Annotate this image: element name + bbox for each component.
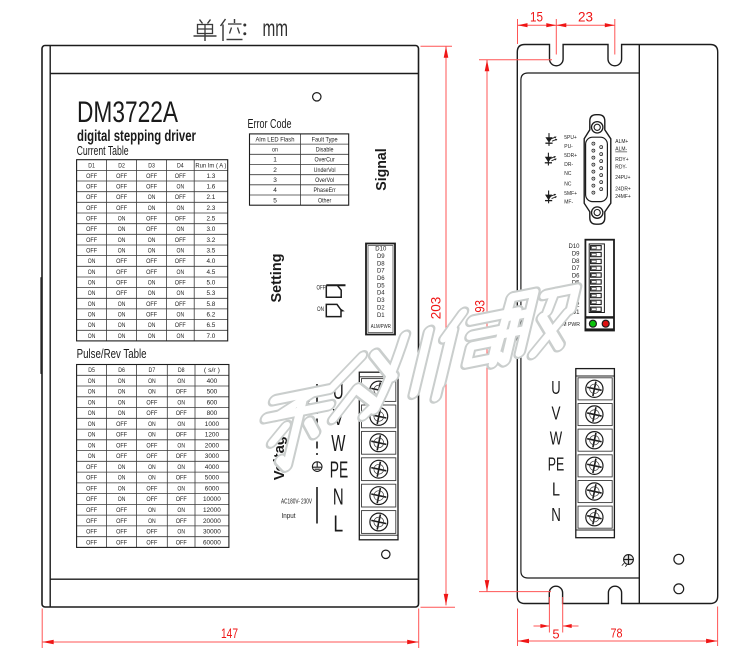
svg-text:OFF: OFF bbox=[146, 529, 157, 536]
svg-text:OFF: OFF bbox=[146, 312, 157, 319]
svg-text:OFF: OFF bbox=[86, 486, 97, 493]
svg-text:L: L bbox=[552, 478, 560, 499]
svg-text:10000: 10000 bbox=[203, 496, 221, 503]
svg-text:D7: D7 bbox=[377, 269, 385, 275]
svg-text:D4: D4 bbox=[377, 291, 385, 297]
svg-text:U: U bbox=[551, 377, 560, 398]
svg-text:2: 2 bbox=[273, 167, 277, 174]
svg-text:Fault Type: Fault Type bbox=[312, 136, 338, 143]
svg-text:ON: ON bbox=[88, 453, 96, 460]
svg-text:ON: ON bbox=[118, 475, 126, 482]
svg-text:PhaseErr: PhaseErr bbox=[314, 187, 337, 194]
svg-text:OFF: OFF bbox=[146, 442, 157, 449]
svg-text:ON: ON bbox=[88, 312, 96, 319]
svg-text:ON: ON bbox=[177, 226, 185, 233]
svg-text:ON: ON bbox=[148, 389, 156, 396]
svg-text:4.5: 4.5 bbox=[206, 269, 215, 276]
svg-text:ON: ON bbox=[88, 258, 96, 265]
svg-text:OFF: OFF bbox=[176, 475, 187, 482]
svg-text:6000: 6000 bbox=[205, 486, 220, 493]
svg-text:OFF: OFF bbox=[317, 285, 326, 292]
svg-text:OFF: OFF bbox=[175, 216, 186, 223]
svg-text:ON: ON bbox=[118, 410, 126, 417]
svg-text:Other: Other bbox=[318, 197, 332, 204]
svg-text:OFF: OFF bbox=[86, 184, 97, 191]
svg-text:5: 5 bbox=[552, 627, 559, 642]
svg-text:15: 15 bbox=[530, 10, 543, 25]
svg-text:RDY+: RDY+ bbox=[615, 157, 629, 163]
svg-text:78: 78 bbox=[611, 626, 623, 641]
svg-text:RDY-: RDY- bbox=[615, 165, 627, 171]
svg-text:1.3: 1.3 bbox=[206, 173, 215, 180]
svg-text:4000: 4000 bbox=[205, 464, 220, 471]
svg-text:Current Table: Current Table bbox=[77, 143, 129, 158]
svg-text:Error Code: Error Code bbox=[248, 116, 292, 131]
svg-text:MF-: MF- bbox=[564, 200, 573, 206]
svg-text:D9: D9 bbox=[572, 252, 580, 258]
svg-text:D8: D8 bbox=[377, 261, 385, 267]
svg-text:3000: 3000 bbox=[205, 453, 220, 460]
svg-text:ON: ON bbox=[317, 306, 324, 313]
svg-text:NC: NC bbox=[564, 171, 571, 177]
svg-text:ON: ON bbox=[148, 194, 156, 201]
svg-text:OFF: OFF bbox=[116, 194, 127, 201]
svg-text:D7: D7 bbox=[572, 266, 580, 272]
svg-text:OFF: OFF bbox=[86, 173, 97, 180]
svg-text:OFF: OFF bbox=[86, 529, 97, 536]
svg-text:D6: D6 bbox=[377, 276, 385, 282]
svg-text:N: N bbox=[551, 504, 561, 525]
svg-text:3.5: 3.5 bbox=[206, 248, 215, 255]
svg-text:D10: D10 bbox=[568, 244, 580, 250]
svg-text:OFF: OFF bbox=[116, 539, 127, 546]
svg-text:ON: ON bbox=[148, 464, 156, 471]
svg-text:1: 1 bbox=[273, 157, 277, 164]
svg-text:ON: ON bbox=[118, 464, 126, 471]
svg-text:6.5: 6.5 bbox=[206, 322, 215, 329]
svg-text:24DR+: 24DR+ bbox=[615, 186, 631, 192]
svg-text:ON: ON bbox=[88, 410, 96, 417]
svg-text:ON: ON bbox=[118, 486, 126, 493]
svg-text:D3: D3 bbox=[377, 298, 385, 304]
svg-text:3: 3 bbox=[273, 177, 277, 184]
svg-text:D5: D5 bbox=[377, 283, 385, 289]
svg-text:OFF: OFF bbox=[146, 539, 157, 546]
svg-text:ON: ON bbox=[88, 399, 96, 406]
svg-text:AC180V- 230V: AC180V- 230V bbox=[281, 497, 312, 506]
svg-text:ON: ON bbox=[177, 312, 185, 319]
svg-text:ON: ON bbox=[148, 475, 156, 482]
svg-text:OFF: OFF bbox=[146, 301, 157, 308]
svg-text:1.6: 1.6 bbox=[206, 184, 215, 191]
svg-text:OverCur: OverCur bbox=[315, 157, 336, 164]
svg-text:OFF: OFF bbox=[116, 269, 127, 276]
svg-text:2.3: 2.3 bbox=[206, 205, 215, 212]
svg-text:ON: ON bbox=[148, 421, 156, 428]
svg-text:2.1: 2.1 bbox=[206, 194, 215, 201]
svg-text:D9: D9 bbox=[377, 254, 385, 260]
svg-text:OFF: OFF bbox=[175, 194, 186, 201]
svg-text:D3: D3 bbox=[148, 162, 155, 169]
svg-text:ON: ON bbox=[148, 280, 156, 287]
svg-text:ON: ON bbox=[88, 378, 96, 385]
svg-text:ON: ON bbox=[88, 389, 96, 396]
svg-text:OFF: OFF bbox=[116, 432, 127, 439]
svg-text:ON: ON bbox=[118, 248, 126, 255]
svg-text:D8: D8 bbox=[572, 259, 580, 265]
svg-text:Input: Input bbox=[282, 511, 297, 520]
svg-text:2.5: 2.5 bbox=[206, 216, 215, 223]
svg-text:ON: ON bbox=[118, 389, 126, 396]
svg-text:OFF: OFF bbox=[176, 539, 187, 546]
svg-text:OFF: OFF bbox=[146, 399, 157, 406]
svg-text:ON: ON bbox=[118, 378, 126, 385]
svg-text:on: on bbox=[272, 147, 278, 154]
svg-text:Disable: Disable bbox=[316, 147, 334, 154]
svg-text:ON: ON bbox=[118, 312, 126, 319]
svg-text:ON: ON bbox=[177, 248, 185, 255]
svg-text:OFF: OFF bbox=[175, 322, 186, 329]
svg-text:ON: ON bbox=[118, 237, 126, 244]
svg-text:ON: ON bbox=[177, 269, 185, 276]
svg-text:800: 800 bbox=[207, 410, 218, 417]
svg-text:ON: ON bbox=[177, 378, 185, 385]
svg-text:OFF: OFF bbox=[146, 226, 157, 233]
svg-text:OFF: OFF bbox=[176, 410, 187, 417]
svg-text:OFF: OFF bbox=[116, 421, 127, 428]
svg-text:4.0: 4.0 bbox=[206, 258, 215, 265]
svg-text:OFF: OFF bbox=[116, 453, 127, 460]
svg-text:ON: ON bbox=[148, 290, 156, 297]
svg-text:DM3722A: DM3722A bbox=[77, 96, 178, 129]
svg-text:D2: D2 bbox=[377, 305, 385, 311]
svg-text:1200: 1200 bbox=[205, 432, 220, 439]
svg-text:ON: ON bbox=[177, 184, 185, 191]
svg-text:147: 147 bbox=[221, 626, 238, 641]
svg-text:OFF: OFF bbox=[86, 475, 97, 482]
svg-text:D7: D7 bbox=[149, 367, 156, 374]
svg-text:ON: ON bbox=[177, 205, 185, 212]
svg-text:ON: ON bbox=[177, 529, 185, 536]
svg-text:ON: ON bbox=[148, 378, 156, 385]
svg-text:Setting: Setting bbox=[268, 254, 285, 303]
svg-text:ON: ON bbox=[177, 464, 185, 471]
svg-text:ON: ON bbox=[118, 216, 126, 223]
svg-text:Run Im ( A ): Run Im ( A ) bbox=[195, 162, 226, 169]
svg-text:OFF: OFF bbox=[175, 173, 186, 180]
svg-text:D6: D6 bbox=[118, 367, 125, 374]
svg-text:ALM/PWR: ALM/PWR bbox=[371, 324, 391, 330]
svg-text:OFF: OFF bbox=[146, 173, 157, 180]
svg-text:ON: ON bbox=[88, 333, 96, 340]
svg-text:OFF: OFF bbox=[116, 184, 127, 191]
svg-text:ON: ON bbox=[177, 442, 185, 449]
svg-text:OFF: OFF bbox=[116, 258, 127, 265]
svg-text:ON: ON bbox=[118, 322, 126, 329]
svg-text:ON: ON bbox=[177, 507, 185, 514]
svg-text:3.2: 3.2 bbox=[206, 237, 215, 244]
svg-text:D1: D1 bbox=[88, 162, 95, 169]
svg-text:W: W bbox=[550, 428, 563, 449]
svg-text:OFF: OFF bbox=[116, 290, 127, 297]
svg-text:400: 400 bbox=[207, 378, 218, 385]
svg-text:OFF: OFF bbox=[176, 389, 187, 396]
svg-text:ON: ON bbox=[177, 290, 185, 297]
svg-text:OFF: OFF bbox=[86, 205, 97, 212]
svg-text:OFF: OFF bbox=[146, 453, 157, 460]
svg-text:5MF+: 5MF+ bbox=[564, 191, 577, 197]
svg-text:ON: ON bbox=[148, 205, 156, 212]
svg-text:PU-: PU- bbox=[564, 144, 573, 150]
svg-text:ON: ON bbox=[148, 518, 156, 525]
svg-text:OFF: OFF bbox=[175, 258, 186, 265]
svg-text:D6: D6 bbox=[572, 273, 580, 279]
svg-text:ON: ON bbox=[88, 280, 96, 287]
svg-text:1000: 1000 bbox=[205, 421, 220, 428]
svg-text:OFF: OFF bbox=[86, 237, 97, 244]
svg-text:OFF: OFF bbox=[116, 173, 127, 180]
svg-text:ON: ON bbox=[88, 442, 96, 449]
svg-text:ALM-: ALM- bbox=[615, 147, 627, 153]
svg-text:OFF: OFF bbox=[86, 226, 97, 233]
svg-text:5.8: 5.8 bbox=[206, 301, 215, 308]
svg-text:12000: 12000 bbox=[203, 507, 221, 514]
svg-text:23: 23 bbox=[578, 10, 593, 25]
svg-text:7.0: 7.0 bbox=[206, 333, 215, 340]
svg-text:mm: mm bbox=[263, 15, 289, 41]
svg-text:ON: ON bbox=[88, 421, 96, 428]
svg-text:W: W bbox=[331, 430, 345, 456]
svg-text:ON: ON bbox=[148, 333, 156, 340]
svg-text:OFF: OFF bbox=[146, 486, 157, 493]
svg-text:ON: ON bbox=[148, 237, 156, 244]
svg-text:OFF: OFF bbox=[146, 269, 157, 276]
svg-text:5: 5 bbox=[273, 197, 277, 204]
svg-text:OFF: OFF bbox=[146, 258, 157, 265]
svg-text:OFF: OFF bbox=[86, 194, 97, 201]
svg-text:ON: ON bbox=[177, 333, 185, 340]
svg-text:NC: NC bbox=[564, 182, 571, 188]
svg-text:OFF: OFF bbox=[146, 184, 157, 191]
svg-text:30000: 30000 bbox=[203, 529, 221, 536]
svg-text:ON: ON bbox=[118, 301, 126, 308]
svg-text:ON: ON bbox=[118, 496, 126, 503]
svg-text:ON: ON bbox=[148, 322, 156, 329]
svg-text:UnderVol: UnderVol bbox=[314, 167, 336, 174]
svg-text:Pulse/Rev Table: Pulse/Rev Table bbox=[77, 346, 147, 361]
svg-text:OFF: OFF bbox=[116, 280, 127, 287]
svg-text:Alm LED Flash: Alm LED Flash bbox=[256, 136, 295, 143]
svg-text:OFF: OFF bbox=[146, 410, 157, 417]
svg-text:D8: D8 bbox=[178, 367, 185, 374]
svg-text:ON: ON bbox=[88, 269, 96, 276]
svg-text:DR-: DR- bbox=[564, 162, 573, 168]
svg-text:20000: 20000 bbox=[203, 518, 221, 525]
svg-text:D5: D5 bbox=[88, 367, 95, 374]
svg-text:ON: ON bbox=[148, 432, 156, 439]
svg-text:OFF: OFF bbox=[116, 205, 127, 212]
svg-text:ON: ON bbox=[177, 421, 185, 428]
svg-text:OFF: OFF bbox=[86, 216, 97, 223]
svg-text:ON: ON bbox=[118, 226, 126, 233]
svg-text:OFF: OFF bbox=[86, 496, 97, 503]
svg-text:5000: 5000 bbox=[205, 475, 220, 482]
svg-text:ALM+: ALM+ bbox=[615, 139, 629, 145]
svg-text:D4: D4 bbox=[177, 162, 184, 169]
svg-text:ON: ON bbox=[177, 486, 185, 493]
svg-text:OFF: OFF bbox=[146, 496, 157, 503]
svg-text:OFF: OFF bbox=[176, 496, 187, 503]
svg-text:OFF: OFF bbox=[175, 237, 186, 244]
svg-text:ON: ON bbox=[148, 248, 156, 255]
svg-text:600: 600 bbox=[207, 399, 218, 406]
svg-text:3.0: 3.0 bbox=[206, 226, 215, 233]
svg-text:OFF: OFF bbox=[146, 216, 157, 223]
svg-text:PE: PE bbox=[330, 457, 348, 483]
svg-text:OFF: OFF bbox=[176, 453, 187, 460]
svg-text:4: 4 bbox=[273, 187, 277, 194]
svg-text:ON: ON bbox=[88, 432, 96, 439]
svg-text:D2: D2 bbox=[118, 162, 125, 169]
svg-text:500: 500 bbox=[207, 389, 218, 396]
svg-text:6.2: 6.2 bbox=[206, 312, 215, 319]
svg-text:ON: ON bbox=[88, 301, 96, 308]
svg-text:D10: D10 bbox=[375, 247, 387, 253]
svg-text:5DR+: 5DR+ bbox=[564, 153, 577, 159]
svg-text:OFF: OFF bbox=[116, 518, 127, 525]
svg-text:24MF+: 24MF+ bbox=[615, 194, 631, 200]
svg-text:5.0: 5.0 bbox=[206, 280, 215, 287]
svg-text:ON: ON bbox=[148, 507, 156, 514]
svg-text:OFF: OFF bbox=[176, 432, 187, 439]
svg-text:ON: ON bbox=[118, 333, 126, 340]
svg-text:N: N bbox=[333, 484, 344, 510]
svg-text:D1: D1 bbox=[377, 313, 385, 319]
svg-text:ON: ON bbox=[88, 290, 96, 297]
svg-text:OFF: OFF bbox=[116, 529, 127, 536]
svg-text:OverVol: OverVol bbox=[315, 177, 334, 184]
svg-text:OFF: OFF bbox=[176, 518, 187, 525]
svg-text:OFF: OFF bbox=[175, 301, 186, 308]
svg-text:ON: ON bbox=[177, 399, 185, 406]
svg-text:5PU+: 5PU+ bbox=[564, 135, 577, 141]
svg-text:OFF: OFF bbox=[116, 507, 127, 514]
svg-text:24PU+: 24PU+ bbox=[615, 175, 631, 181]
svg-text:ON: ON bbox=[118, 399, 126, 406]
svg-text:5.3: 5.3 bbox=[206, 290, 215, 297]
svg-text:OFF: OFF bbox=[116, 442, 127, 449]
svg-text:OFF: OFF bbox=[86, 464, 97, 471]
svg-text:OFF: OFF bbox=[86, 507, 97, 514]
svg-text:L: L bbox=[333, 511, 343, 537]
svg-text:OFF: OFF bbox=[86, 518, 97, 525]
svg-text:OFF: OFF bbox=[175, 280, 186, 287]
svg-text:2000: 2000 bbox=[205, 442, 220, 449]
svg-text:ON: ON bbox=[88, 322, 96, 329]
svg-text:PE: PE bbox=[548, 453, 565, 474]
svg-text:OFF: OFF bbox=[86, 539, 97, 546]
svg-text:V: V bbox=[552, 402, 561, 423]
svg-text:Signal: Signal bbox=[373, 148, 390, 191]
svg-text:OFF: OFF bbox=[86, 248, 97, 255]
svg-text:( s/r ): ( s/r ) bbox=[204, 367, 220, 374]
svg-text:203: 203 bbox=[429, 297, 444, 320]
svg-text:60000: 60000 bbox=[203, 539, 221, 546]
